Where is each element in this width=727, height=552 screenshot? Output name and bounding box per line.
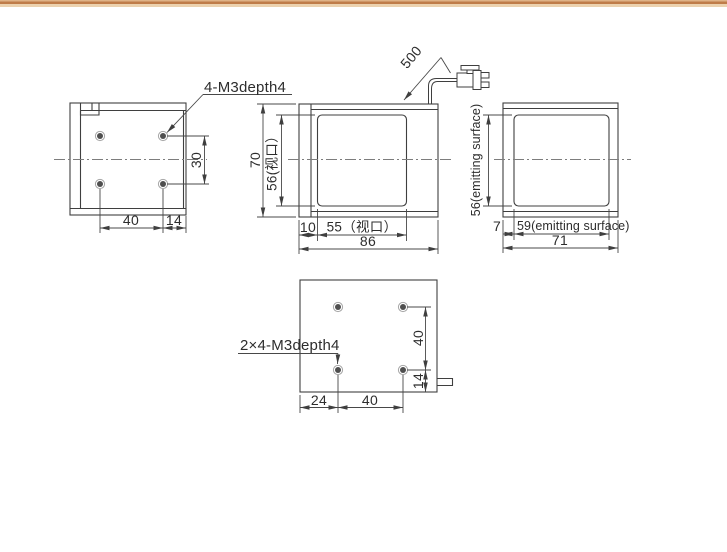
dim-front-width: 71: [552, 233, 568, 247]
dim-back-hole-spacing-v: 30: [189, 152, 203, 168]
dim-front-emitting-width: 59(emitting surface): [517, 220, 629, 233]
dim-bottom-hole-spacing-h: 40: [362, 393, 378, 407]
connector: [457, 66, 489, 90]
drawing-linework: [0, 0, 727, 552]
back-view-holes: [95, 131, 167, 188]
dim-bottom-edge-offset-v: 14: [411, 373, 425, 389]
thread-note-back: 4-M3depth4: [204, 80, 286, 95]
thread-note-bottom: 2×4-M3depth4: [240, 338, 340, 353]
dim-side-window-width: 55（视口）: [327, 220, 398, 234]
dim-back-edge-offset: 14: [166, 213, 182, 227]
dim-bottom-edge-offset-h: 24: [311, 393, 327, 407]
back-view-linework: [70, 103, 186, 215]
dim-front-offset: 7: [493, 219, 501, 233]
dim-side-window-height: 56(视口）: [265, 129, 279, 191]
cable: [429, 79, 458, 105]
side-view-linework: [299, 104, 438, 217]
dim-bottom-hole-spacing-v: 40: [411, 330, 425, 346]
bottom-view-linework: [300, 280, 453, 392]
bottom-view-holes: [333, 302, 407, 374]
dim-side-offset: 10: [300, 220, 316, 234]
dim-back-hole-spacing-h: 40: [123, 213, 139, 227]
dim-side-width: 86: [360, 234, 376, 248]
dim-front-emitting-height: 56(emitting surface): [470, 104, 483, 216]
front-view-linework: [503, 103, 618, 217]
bottom-view-dimensions: [238, 307, 431, 413]
dim-side-height: 70: [248, 152, 262, 168]
technical-drawing-sheet: 4-M3depth4 30 40 14 70 56(视口） 10 55（视口） …: [0, 0, 727, 552]
